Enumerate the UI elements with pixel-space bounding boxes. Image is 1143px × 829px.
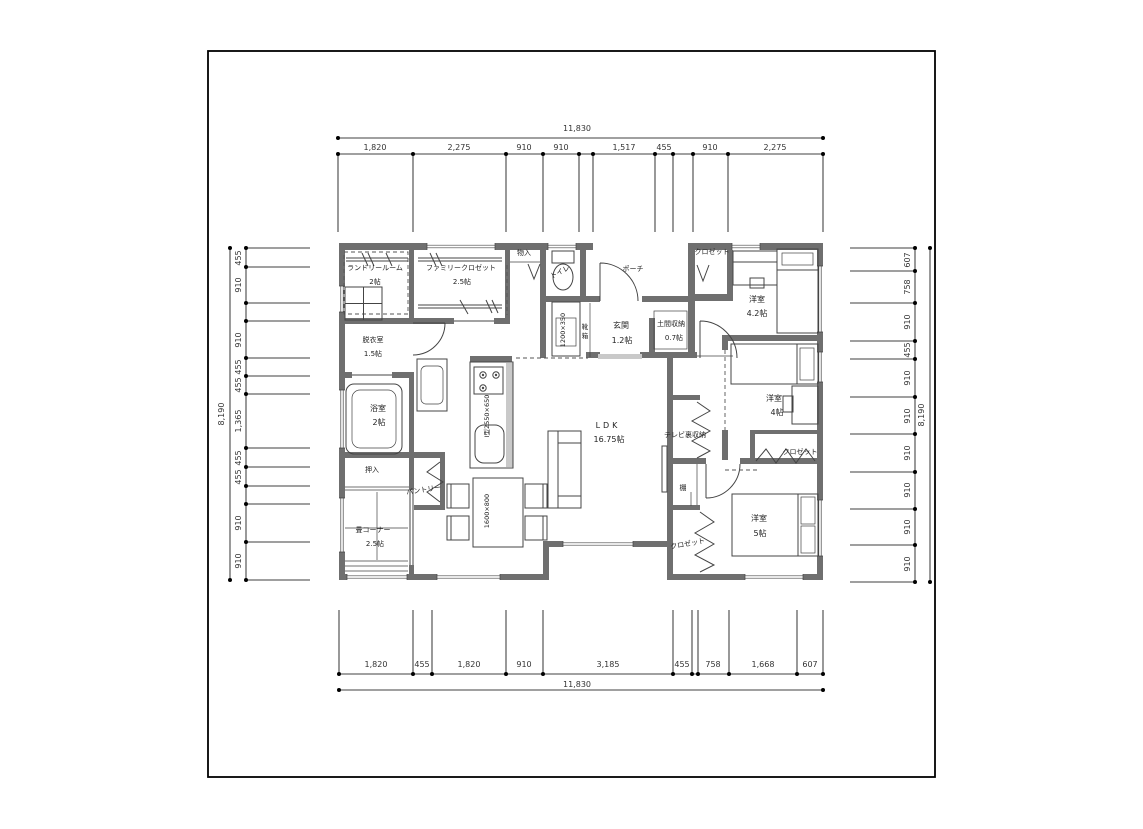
room-label-bed4: 洋室 <box>766 393 782 403</box>
dining-chair <box>447 484 469 508</box>
label-closet-5: クロゼット <box>670 536 706 551</box>
dim-right-seg: 910 <box>903 556 912 571</box>
bed-5 <box>732 494 818 556</box>
dim-bottom-seg: 758 <box>705 660 720 669</box>
room-size-tatami: 2.5帖 <box>366 539 384 548</box>
dining-table-size: 1600×800 <box>483 494 491 528</box>
label-closet-4: クロゼット <box>783 447 818 456</box>
room-label-laundry: ランドリールーム <box>347 264 403 272</box>
dim-bottom-seg: 1,668 <box>752 660 775 669</box>
room-label-doma: 土間収納 <box>657 319 685 328</box>
oshiire-fusuma <box>345 487 409 490</box>
room-label-bath: 浴室 <box>370 403 386 413</box>
dim-bottom-seg: 3,185 <box>597 660 620 669</box>
dim-top-seg: 2,275 <box>448 143 471 152</box>
room-size-bed4: 4帖 <box>770 407 783 417</box>
dim-right-total: 8,190 <box>917 404 926 427</box>
room-label-tatami: 畳コーナー <box>356 526 391 534</box>
bed-4 <box>731 344 818 384</box>
room-size-bed5: 5帖 <box>753 528 766 538</box>
dining-chair <box>525 516 547 540</box>
room-size-bath: 2帖 <box>372 417 385 427</box>
room-label-genkan: 玄関 <box>613 320 629 330</box>
room-size-family-closet: 2.5帖 <box>453 277 471 286</box>
shelf-line <box>691 464 697 506</box>
kitchen-size: I型2550×650 <box>482 395 491 438</box>
pillow <box>801 497 815 524</box>
dim-left-seg: 1,365 <box>234 410 243 433</box>
tatami-sliding-doors <box>410 490 413 565</box>
room-size-dressing: 1.5帖 <box>364 349 382 358</box>
label-shoe-box: 靴 <box>582 322 589 331</box>
dim-top-total: 11,830 <box>563 124 591 133</box>
label-toilet: トイレ <box>549 264 571 281</box>
desk-bed4 <box>792 386 818 424</box>
walls <box>339 243 823 580</box>
dim-right-seg: 455 <box>903 342 912 357</box>
label-tv-storage: テレビ裏収納 <box>664 430 706 439</box>
dim-bottom-seg: 910 <box>516 660 531 669</box>
dim-right-seg: 910 <box>903 370 912 385</box>
dim-bottom-seg: 455 <box>674 660 689 669</box>
drawing-frame <box>208 51 935 777</box>
fc-hanger-rod-bottom <box>418 300 502 314</box>
label-shoe-box: 箱 <box>582 331 589 340</box>
label-monoire: 物入 <box>517 248 531 257</box>
dim-left-seg: 910 <box>234 277 243 292</box>
dim-bottom-seg: 1,820 <box>458 660 481 669</box>
dim-left-seg: 455 <box>234 377 243 392</box>
room-label-dressing: 脱衣室 <box>363 335 384 344</box>
dim-left-seg: 455 <box>234 250 243 265</box>
label-shelf: 棚 <box>680 483 687 492</box>
dim-top-seg: 2,275 <box>764 143 787 152</box>
dim-left-seg: 910 <box>234 553 243 568</box>
pillow <box>801 526 815 553</box>
washbasin-counter <box>417 359 447 411</box>
dimension-bottom: 1,820 455 1,820 910 3,185 455 758 1,668 … <box>337 610 825 692</box>
dining-chair <box>525 484 547 508</box>
dimension-right: 607 758 910 455 910 910 910 910 910 910 … <box>850 246 932 584</box>
room-size-laundry: 2帖 <box>369 277 380 286</box>
room-size-bed42: 4.2帖 <box>747 308 768 318</box>
desk-bed42 <box>733 251 777 285</box>
tv-storage-folding-door <box>692 402 710 458</box>
room-label-bed42: 洋室 <box>749 294 765 304</box>
dim-top-seg: 455 <box>656 143 671 152</box>
stove <box>474 367 503 394</box>
kitchen-counter-edge <box>506 363 513 467</box>
dim-left-seg: 910 <box>234 515 243 530</box>
dim-bottom-seg: 455 <box>414 660 429 669</box>
label-closet-42: クロゼット <box>695 247 730 256</box>
dim-top-seg: 910 <box>553 143 568 152</box>
dining-table <box>473 478 523 547</box>
dim-bottom-seg: 607 <box>802 660 817 669</box>
dim-right-seg: 910 <box>903 314 912 329</box>
room-label-ldk: LDK <box>596 421 621 430</box>
dim-top-seg: 1,517 <box>613 143 636 152</box>
dimension-top: 11,830 1,820 2,275 910 910 1,517 455 910… <box>336 124 825 232</box>
dim-right-seg: 910 <box>903 445 912 460</box>
dim-left-total: 8,190 <box>217 403 226 426</box>
dimension-left: 455 910 910 455 455 1,365 455 455 910 91… <box>217 246 310 582</box>
engawa-boards <box>345 561 408 571</box>
label-porch: ポーチ <box>623 265 644 273</box>
label-oshiire: 押入 <box>365 465 379 474</box>
dim-right-seg: 910 <box>903 519 912 534</box>
dim-left-seg: 455 <box>234 359 243 374</box>
chair-bed42 <box>750 278 764 288</box>
monoire-folding-door <box>528 264 540 279</box>
floorplan-page: 11,830 1,820 2,275 910 910 1,517 455 910… <box>0 0 1143 829</box>
pillow <box>782 253 813 265</box>
bedroom5-door-arc <box>706 464 740 498</box>
floorplan-drawing: 11,830 1,820 2,275 910 910 1,517 455 910… <box>0 0 1143 829</box>
dim-top-seg: 910 <box>702 143 717 152</box>
doma-floor-outline <box>654 311 687 349</box>
doors <box>352 263 815 572</box>
dim-left-seg: 910 <box>234 332 243 347</box>
dim-right-seg: 910 <box>903 482 912 497</box>
dim-right-seg: 607 <box>903 252 912 267</box>
pillow <box>800 348 814 380</box>
closet42-folding-door <box>697 265 709 281</box>
tv <box>662 446 667 492</box>
dim-top-seg: 1,820 <box>364 143 387 152</box>
dim-right-seg: 910 <box>903 408 912 423</box>
toilet-tank <box>552 251 574 263</box>
dressing-door-arc <box>413 323 445 355</box>
dim-right-seg: 758 <box>903 279 912 294</box>
shoe-cabinet-size: 1200×350 <box>559 313 567 347</box>
dim-bottom-total: 11,830 <box>563 680 591 689</box>
room-label-bed5: 洋室 <box>751 513 767 523</box>
dim-bottom-seg: 1,820 <box>365 660 388 669</box>
room-label-family-closet: ファミリークロゼット <box>426 263 496 272</box>
dim-left-seg: 455 <box>234 469 243 484</box>
room-size-genkan: 1.2帖 <box>612 335 633 345</box>
room-size-ldk: 16.75帖 <box>594 434 625 444</box>
entry-step <box>598 354 642 359</box>
bed-42 <box>777 249 818 333</box>
dim-left-seg: 455 <box>234 450 243 465</box>
room-size-doma: 0.7帖 <box>665 333 683 342</box>
dining-chair <box>447 516 469 540</box>
dim-top-seg: 910 <box>516 143 531 152</box>
